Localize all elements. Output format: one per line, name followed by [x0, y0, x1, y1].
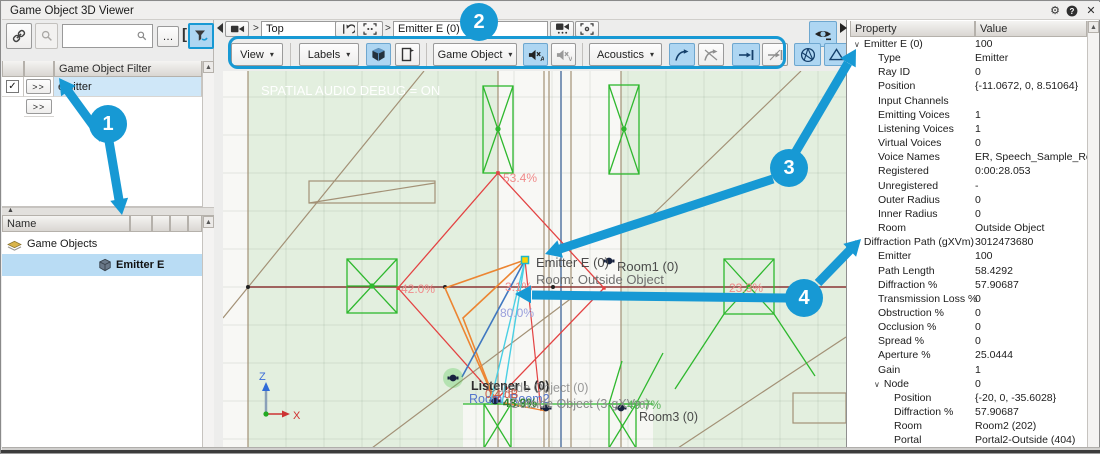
title-bar: Game Object 3D Viewer ⚙ ? ✕: [2, 2, 1100, 20]
property-panel: Property Value ∨Emitter E (0)100TypeEmit…: [846, 20, 1098, 448]
property-value: 0: [975, 207, 981, 221]
property-row[interactable]: Diffraction %57.90687: [850, 405, 1087, 419]
filter-value-emitter[interactable]: emitter: [54, 77, 202, 97]
property-row[interactable]: ∨Node0: [850, 377, 1087, 391]
room-portal-icon: [401, 47, 414, 62]
wire-sphere-icon: [800, 47, 816, 63]
property-row[interactable]: Gain1: [850, 363, 1087, 377]
axis-x-label: X: [293, 410, 301, 422]
tree-collapse-icon[interactable]: ∨: [874, 380, 880, 389]
axis-z-label: Z: [259, 371, 266, 383]
property-value: 1: [975, 108, 981, 122]
diffraction-arrow-off-icon: [703, 48, 719, 62]
link-button[interactable]: [6, 23, 32, 49]
panel-splitter[interactable]: ▲: [2, 207, 214, 216]
property-value: 100: [975, 249, 993, 263]
property-label: Emitting Voices: [878, 108, 950, 122]
filter-row2-expander-cell: >>: [24, 97, 54, 117]
expand-right-icon[interactable]: [839, 22, 848, 34]
property-row[interactable]: PortalPortal2-Outside (404): [850, 433, 1087, 447]
bracket-decoration: [: [182, 26, 187, 43]
property-column-header[interactable]: Property: [850, 21, 975, 37]
filter-funnel-icon: [193, 28, 209, 44]
filter-row-expander-cell: >>: [24, 77, 54, 97]
tree-label-emitter-e: Emitter E: [116, 259, 202, 271]
filter-row-checkbox[interactable]: ✓: [6, 80, 19, 93]
property-label: Gain: [878, 363, 900, 377]
focus-object-button[interactable]: [357, 21, 383, 37]
property-value: 1: [975, 122, 981, 136]
viewport-canvas[interactable]: Z X SPATIAL AUDIO DEBUG = ON 53.4% 42.0%…: [223, 71, 846, 448]
property-row[interactable]: Aperture %25.0444: [850, 348, 1087, 362]
property-row[interactable]: Voice NamesER, Speech_Sample_Reflect: [850, 150, 1087, 164]
hide-transmission-button[interactable]: [762, 43, 788, 66]
view-menu-button[interactable]: View: [231, 43, 283, 66]
property-label: Obstruction %: [878, 306, 944, 320]
property-value: Emitter: [975, 51, 1008, 65]
emitter-label: Emitter E (0): [536, 255, 609, 270]
property-grid: ∨Emitter E (0)100TypeEmitterRay ID0Posit…: [850, 37, 1087, 448]
settings-gear-icon[interactable]: ⚙: [1048, 5, 1062, 18]
property-label: Type: [878, 51, 901, 65]
show-transmission-button[interactable]: [732, 43, 760, 66]
tree-collapse-icon[interactable]: ∨: [854, 40, 860, 49]
svg-text:?: ?: [1070, 7, 1075, 16]
search-icon: [40, 29, 54, 43]
callout-4: 4: [785, 279, 823, 317]
property-label: Input Channels: [878, 94, 949, 108]
property-value: Outside Object: [975, 221, 1044, 235]
property-row[interactable]: RoomRoom2 (202): [850, 419, 1087, 433]
property-value: 25.0444: [975, 348, 1013, 362]
diffraction-arrow-icon: [674, 48, 690, 62]
property-row[interactable]: Input Channels: [850, 94, 1087, 108]
show-spread-cone-button[interactable]: [794, 43, 821, 66]
camera-dots-icon: [555, 23, 570, 35]
property-row[interactable]: Emitter100: [850, 249, 1087, 263]
property-value: 0: [975, 377, 981, 391]
tree-row-emitter-e[interactable]: Emitter E M S: [2, 254, 202, 276]
tree-label-game-objects: Game Objects: [27, 238, 97, 250]
scroll-up-icon[interactable]: ▲: [1088, 21, 1099, 33]
labels-menu-button[interactable]: Labels: [299, 43, 359, 66]
property-value: 0: [975, 334, 981, 348]
property-row[interactable]: ∨Emitter E (0)100: [850, 37, 1087, 51]
close-icon[interactable]: ✕: [1084, 5, 1098, 18]
property-value: 1: [975, 363, 981, 377]
property-label: Path Length: [878, 264, 935, 278]
property-value: 0: [975, 292, 981, 306]
property-value: 57.90687: [975, 278, 1019, 292]
fit-frame-icon: [580, 23, 594, 35]
triangle-icon: [829, 48, 844, 61]
frame-all-button[interactable]: [575, 21, 599, 37]
game-object-filter-panel: … [ Game Object Filter ✓ >> emitter >> ▲…: [2, 20, 214, 448]
filter-expander-button-2[interactable]: >>: [26, 99, 52, 114]
property-row[interactable]: Listening Voices1: [850, 122, 1087, 136]
property-value: 57.90687: [975, 405, 1019, 419]
property-label: Portal: [894, 433, 921, 447]
filter-expander-button[interactable]: >>: [26, 79, 51, 94]
property-label: ∨Node: [874, 377, 909, 392]
name-header-col4: [170, 216, 188, 232]
property-value: Room2 (202): [975, 419, 1036, 433]
property-value: 0:00:28.053: [975, 164, 1030, 178]
property-label: Virtual Voices: [878, 136, 941, 150]
hide-diffraction-button[interactable]: [698, 43, 724, 66]
room3-label: Room3 (0): [639, 410, 698, 424]
splitter-collapse-icon[interactable]: ▲: [7, 207, 14, 214]
property-value: Portal2-Outside (404): [975, 433, 1075, 447]
property-label: Emitter: [878, 249, 911, 263]
property-value: 58.4292: [975, 264, 1013, 278]
property-row[interactable]: Transmission Loss %0: [850, 292, 1087, 306]
property-value: 0: [975, 306, 981, 320]
collapse-left-icon[interactable]: [216, 22, 224, 34]
property-label: Unregistered: [878, 179, 938, 193]
check-icon: ✓: [8, 81, 16, 92]
show-geometry-button[interactable]: [366, 43, 391, 66]
tree-collapse-icon[interactable]: ∨: [854, 238, 860, 247]
show-diffraction-button[interactable]: [669, 43, 695, 66]
toolbar-separator: [290, 43, 291, 66]
property-label: Inner Radius: [878, 207, 938, 221]
property-value: 100: [975, 37, 993, 51]
property-row[interactable]: Registered0:00:28.053: [850, 164, 1087, 178]
link-icon: [11, 28, 27, 44]
camera-follow-button[interactable]: [550, 21, 574, 37]
search-button[interactable]: [35, 23, 58, 49]
filter-header-checkbox-col: [2, 61, 24, 77]
diffraction-pct-label: 23.3%: [729, 281, 763, 295]
browse-button[interactable]: …: [157, 26, 179, 47]
property-value: 0: [975, 136, 981, 150]
property-row[interactable]: Position{-20, 0, -35.6028}: [850, 391, 1087, 405]
game-object-menu-button[interactable]: Game Object: [433, 43, 517, 66]
property-label: Ray ID: [878, 65, 910, 79]
property-label: Diffraction %: [894, 405, 953, 419]
property-row[interactable]: Virtual Voices0: [850, 136, 1087, 150]
property-label: Aperture %: [878, 348, 931, 362]
focus-frame-icon: [363, 23, 377, 35]
property-label: Position: [878, 79, 915, 93]
undo-icon: [341, 23, 355, 35]
property-row[interactable]: Unregistered-: [850, 179, 1087, 193]
filter-scrollbar[interactable]: ▲ ▼: [202, 61, 214, 207]
property-row[interactable]: TypeEmitter: [850, 51, 1087, 65]
toolbar-separator: [426, 43, 427, 66]
property-label: Spread %: [878, 334, 924, 348]
solid-cube-icon: [371, 47, 386, 62]
property-label: Listening Voices: [878, 122, 954, 136]
callout-1: 1: [89, 105, 127, 143]
camera-view-button[interactable]: [225, 21, 249, 37]
chevron-separator: >: [385, 23, 391, 34]
filter-toggle-button[interactable]: [188, 23, 214, 49]
property-row[interactable]: Emitting Voices1: [850, 108, 1087, 122]
property-row[interactable]: Occlusion %0: [850, 320, 1087, 334]
property-label: Room: [878, 221, 906, 235]
property-value: -: [975, 179, 979, 193]
property-row[interactable]: Inner Radius0: [850, 207, 1087, 221]
property-label: ∨Emitter E (0): [854, 37, 923, 52]
callout-3: 3: [770, 149, 808, 187]
camera-icon: [230, 24, 245, 34]
name-header-col5: [188, 216, 202, 232]
property-row[interactable]: RoomOutside Object: [850, 221, 1087, 235]
property-value: 3012473680: [975, 235, 1033, 249]
cube-icon: [98, 258, 112, 272]
property-label: Position: [894, 391, 931, 405]
property-label: Outer Radius: [878, 193, 940, 207]
property-row[interactable]: Path Length58.4292: [850, 264, 1087, 278]
scroll-up-icon[interactable]: ▲: [203, 216, 214, 228]
property-value: {-11.0672, 0, 8.51064}: [975, 79, 1078, 93]
property-value: {-20, 0, -35.6028}: [975, 391, 1056, 405]
game-object-3d-viewer-window: Game Object 3D Viewer ⚙ ? ✕ … [ Game Obj…: [0, 0, 1100, 454]
layers-icon: [7, 238, 22, 251]
property-label: Room: [894, 419, 922, 433]
transmission-off-icon: [767, 49, 784, 61]
property-value: 0: [975, 193, 981, 207]
search-icon: [136, 30, 148, 42]
help-icon[interactable]: ?: [1066, 5, 1080, 18]
view-preset-input[interactable]: Top: [261, 21, 343, 37]
svg-text:A: A: [540, 56, 544, 62]
diffraction-pct-label: 53.4%: [503, 171, 537, 185]
property-row[interactable]: Spread %0: [850, 334, 1087, 348]
property-label: Registered: [878, 164, 929, 178]
svg-text:V: V: [568, 56, 572, 62]
filter-header-expander-col: [24, 61, 54, 77]
filter-search-input[interactable]: [62, 24, 153, 48]
property-label: Occlusion %: [878, 320, 936, 334]
property-label: Diffraction %: [878, 278, 937, 292]
property-row[interactable]: Position{-11.0672, 0, 8.51064}: [850, 79, 1087, 93]
property-row[interactable]: Outer Radius0: [850, 193, 1087, 207]
mute-audio-button[interactable]: A: [523, 43, 548, 66]
property-value: 0: [975, 65, 981, 79]
emitter-room-label: Room: Outside Object: [536, 272, 664, 287]
property-row[interactable]: ∨Diffraction Path (gXVm)3012473680: [850, 235, 1087, 249]
property-label: Voice Names: [878, 150, 940, 164]
name-header-col2: [130, 216, 152, 232]
name-header-col3: [152, 216, 170, 232]
property-value: 0: [975, 320, 981, 334]
name-scrollbar[interactable]: ▲ ▼: [202, 216, 214, 448]
muted-speaker-a-icon: A: [528, 48, 544, 62]
callout-2: 2: [460, 3, 498, 41]
property-row[interactable]: Obstruction %0: [850, 306, 1087, 320]
property-row[interactable]: Ray ID0: [850, 65, 1087, 79]
window-title: Game Object 3D Viewer: [10, 5, 134, 17]
viewport-region: > Top > Emitter E (0) View Labels Game O…: [214, 20, 846, 448]
show-rooms-button[interactable]: [395, 43, 420, 66]
spatial-audio-debug-banner: SPATIAL AUDIO DEBUG = ON: [261, 83, 440, 98]
eye-icon: [814, 28, 832, 41]
filter-header: Game Object Filter: [54, 61, 202, 77]
property-label: Transmission Loss %: [878, 292, 977, 306]
diffraction-pct-label: 42.0%: [401, 282, 435, 296]
transmission-pct-label: 80.0%: [500, 306, 534, 320]
muted-speaker-v-icon: V: [556, 48, 572, 62]
property-row[interactable]: Diffraction %57.90687: [850, 278, 1087, 292]
chevron-separator: >: [253, 23, 259, 34]
filter-row-checkbox-cell: ✓: [2, 77, 24, 97]
transmission-icon: [738, 49, 755, 61]
diffraction-pct-label: 3.1%: [505, 280, 533, 294]
property-scrollbar[interactable]: ▲ ▼: [1087, 21, 1099, 448]
property-label: ∨Diffraction Path (gXVm): [854, 235, 974, 250]
scroll-up-icon[interactable]: ▲: [203, 61, 214, 73]
tree-row-game-objects[interactable]: Game Objects: [2, 234, 202, 254]
acoustics-menu-button[interactable]: Acoustics: [589, 43, 662, 66]
property-value: ER, Speech_Sample_Reflect: [975, 150, 1087, 164]
mute-voices-button[interactable]: V: [551, 43, 576, 66]
value-column-header[interactable]: Value: [975, 21, 1087, 37]
name-header: Name: [2, 216, 130, 232]
toolbar-separator: [582, 43, 583, 66]
emitter-marker[interactable]: [522, 257, 529, 264]
